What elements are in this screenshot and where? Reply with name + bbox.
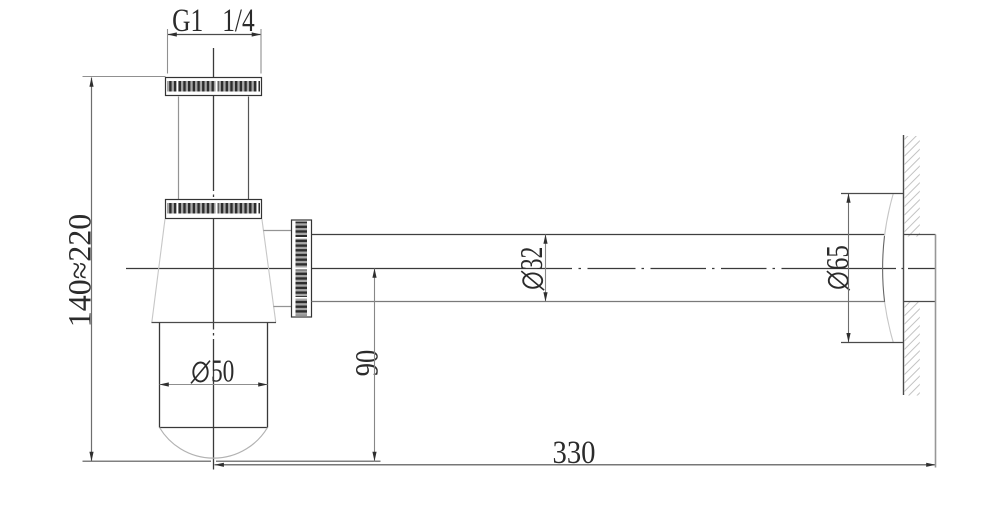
- svg-text:90: 90: [349, 350, 385, 376]
- svg-text:G1 1/4: G1 1/4: [172, 3, 255, 39]
- svg-text:65: 65: [820, 245, 856, 270]
- svg-text:140≈220: 140≈220: [62, 214, 99, 328]
- svg-text:32: 32: [515, 247, 550, 270]
